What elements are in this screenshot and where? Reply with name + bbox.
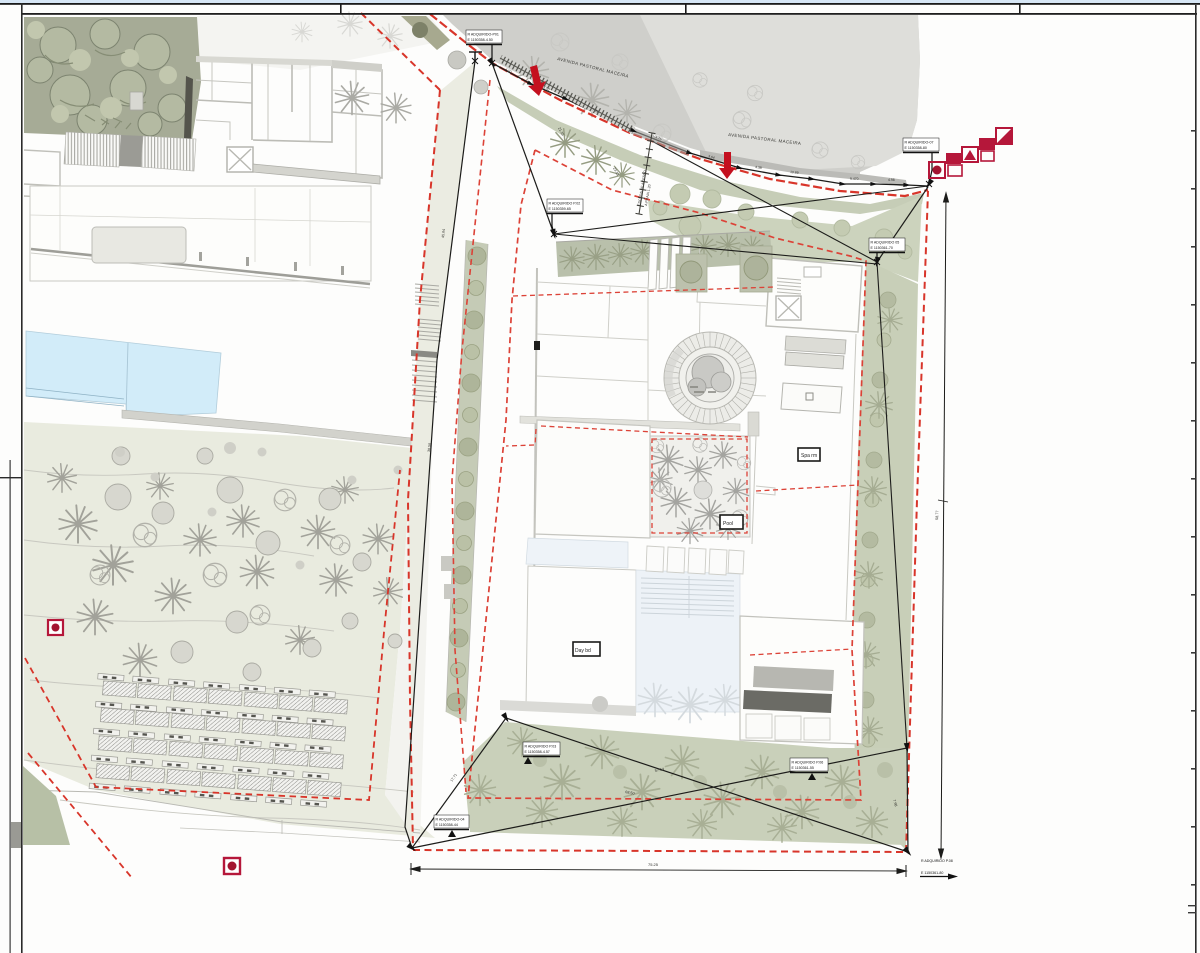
svg-text:4.98: 4.98 — [888, 178, 895, 182]
svg-text:E 1150358-4.57: E 1150358-4.57 — [525, 750, 550, 754]
svg-text:58.77: 58.77 — [935, 510, 939, 520]
svg-text:E 1150358-44: E 1150358-44 — [436, 823, 458, 827]
svg-text:R ADQUIRIDO-04: R ADQUIRIDO-04 — [436, 818, 465, 822]
svg-text:75.25: 75.25 — [648, 862, 659, 867]
svg-text:E 1150361-80: E 1150361-80 — [921, 871, 943, 875]
svg-text:R ADQUIRIDO P.03: R ADQUIRIDO P.03 — [525, 745, 557, 749]
svg-text:E 1150359-65: E 1150359-65 — [549, 207, 571, 211]
svg-text:E 1150358-80: E 1150358-80 — [905, 146, 927, 150]
svg-text:Pool: Pool — [723, 521, 733, 527]
svg-text:9.470: 9.470 — [850, 177, 859, 181]
svg-text:R ADQUIRIDO 05: R ADQUIRIDO 05 — [871, 241, 900, 245]
svg-text:R ADQUIRIDO P.06: R ADQUIRIDO P.06 — [792, 761, 824, 765]
svg-text:R ADQUIRIDO P.02: R ADQUIRIDO P.02 — [549, 202, 581, 206]
svg-text:Day bd: Day bd — [575, 648, 591, 654]
svg-text:E 1150361-55: E 1150361-55 — [792, 766, 814, 770]
svg-text:Spa rm: Spa rm — [801, 453, 817, 459]
svg-text:R ADQUIRIDO-P01: R ADQUIRIDO-P01 — [468, 33, 499, 37]
svg-text:R ADQUIRIDO P.08: R ADQUIRIDO P.08 — [921, 859, 953, 863]
svg-text:R ADQUIRIDO-07: R ADQUIRIDO-07 — [905, 141, 934, 145]
svg-text:E 1150358-4.50: E 1150358-4.50 — [468, 38, 493, 42]
svg-text:E 1150361-70: E 1150361-70 — [871, 246, 893, 250]
